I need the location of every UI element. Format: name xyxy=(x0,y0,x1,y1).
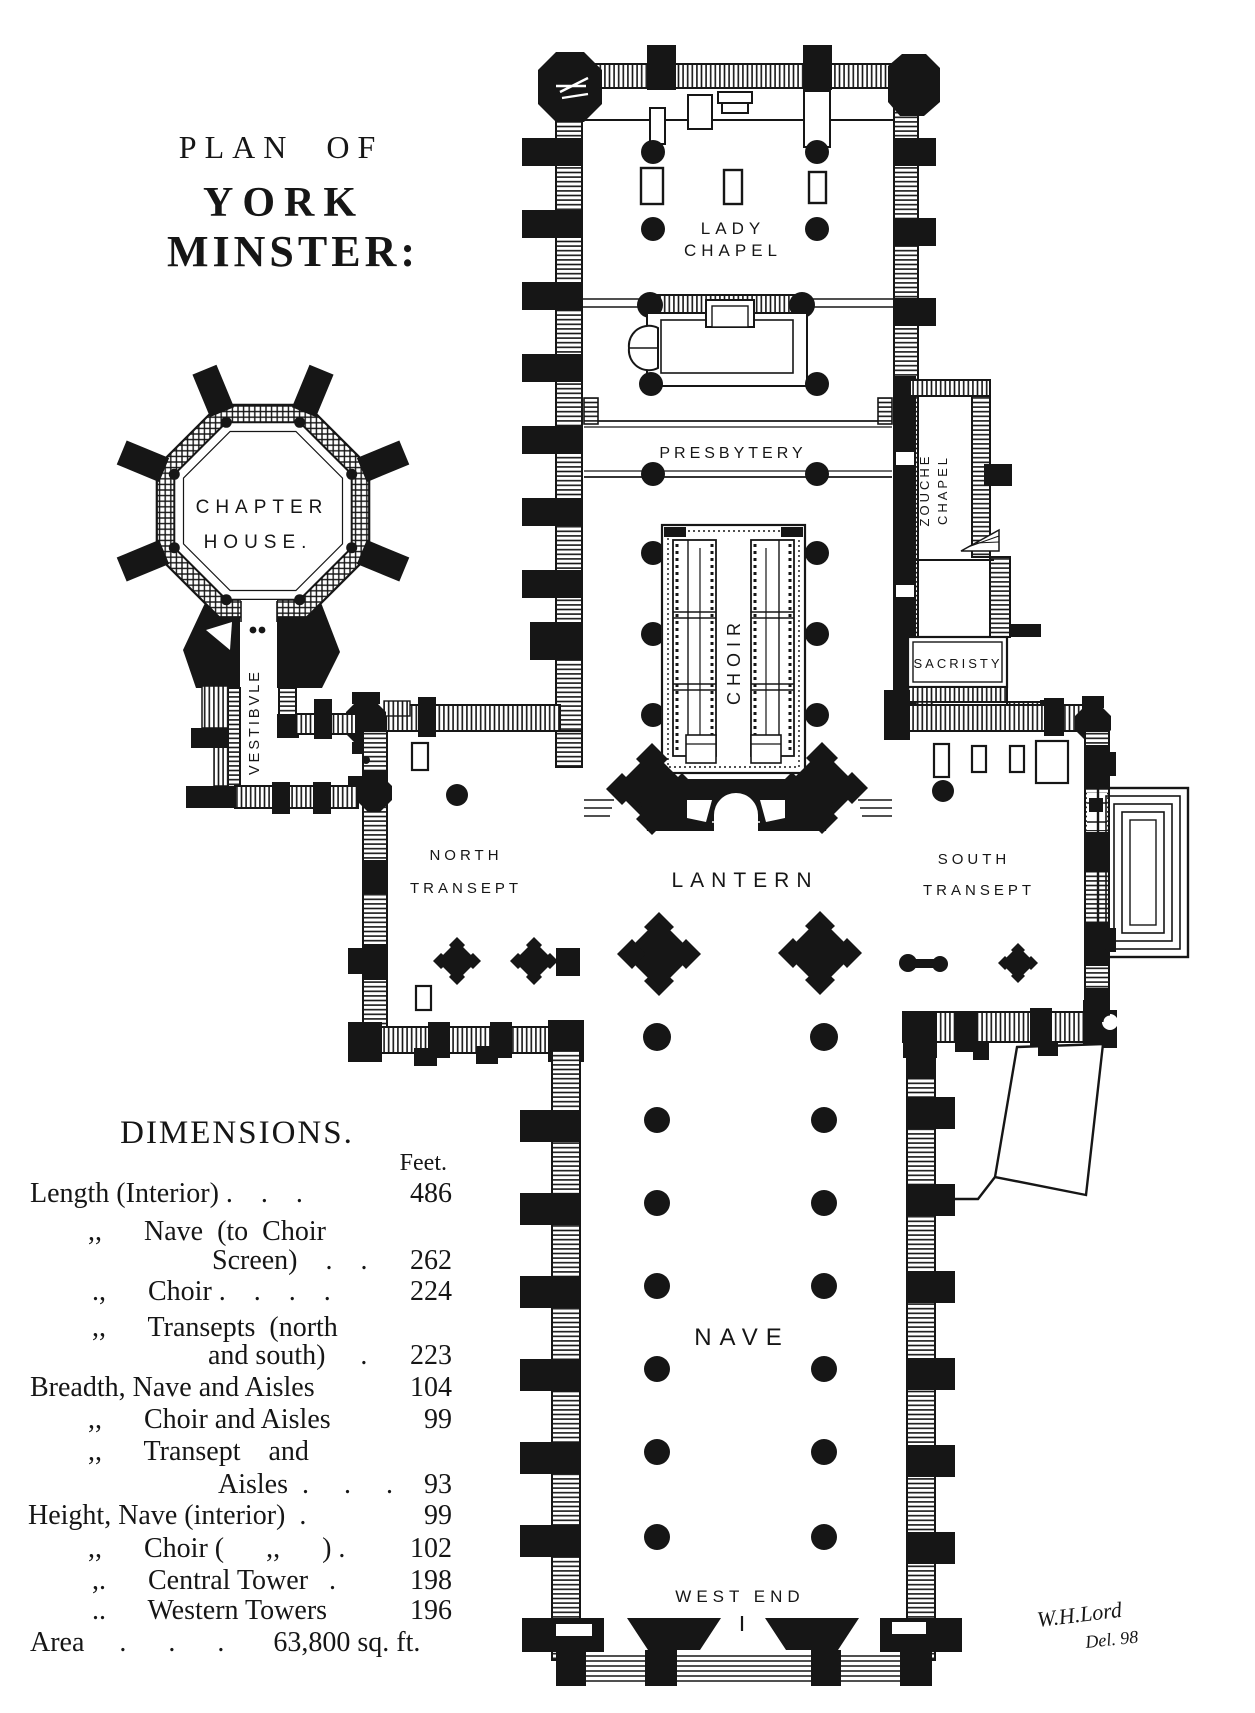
svg-text:LADY: LADY xyxy=(701,219,765,238)
svg-text:196: 196 xyxy=(410,1595,452,1626)
svg-text:MINSTER:: MINSTER: xyxy=(167,227,419,276)
svg-text:TRANSEPT: TRANSEPT xyxy=(923,882,1035,899)
svg-text:TRANSEPT: TRANSEPT xyxy=(410,880,522,897)
svg-text:.. Western Towers: .. Western Towers xyxy=(92,1595,327,1626)
svg-text:Area . . .: Area . . . 63,800 sq. ft. xyxy=(30,1627,420,1658)
svg-text:DIMENSIONS.: DIMENSIONS. xyxy=(120,1115,354,1151)
svg-text:CHOIR: CHOIR xyxy=(724,617,744,705)
svg-text:198: 198 xyxy=(410,1565,452,1596)
svg-text:93: 93 xyxy=(424,1469,452,1500)
svg-text:CHAPEL: CHAPEL xyxy=(684,241,782,260)
svg-text:224: 224 xyxy=(410,1276,452,1307)
svg-text:YORK: YORK xyxy=(203,180,365,226)
svg-text:Feet.: Feet. xyxy=(400,1150,447,1176)
svg-text:VESTIBVLE: VESTIBVLE xyxy=(247,669,263,775)
svg-text:., Choir . . . .: ., Choir . . . . xyxy=(92,1276,331,1307)
svg-text:NORTH: NORTH xyxy=(429,847,502,864)
svg-text:486: 486 xyxy=(410,1178,452,1209)
svg-text:NAVE: NAVE xyxy=(694,1324,790,1351)
svg-text:,, Transepts (north: ,, Transepts (north xyxy=(92,1312,338,1343)
svg-text:104: 104 xyxy=(410,1372,452,1403)
svg-text:ZOUCHE: ZOUCHE xyxy=(917,454,932,527)
svg-text:SACRISTY: SACRISTY xyxy=(913,656,1002,671)
svg-text:Height, Nave (interior) .: Height, Nave (interior) . xyxy=(28,1500,306,1531)
svg-text:WEST END: WEST END xyxy=(675,1587,804,1606)
svg-text:99: 99 xyxy=(424,1500,452,1531)
svg-text:and south) .: and south) . xyxy=(208,1340,367,1371)
svg-text:Aisles . . .: Aisles . . . xyxy=(218,1469,393,1500)
svg-text:CHAPEL: CHAPEL xyxy=(935,455,950,525)
svg-text:,, Choir and Aisles: ,, Choir and Aisles xyxy=(88,1404,331,1435)
svg-text:Screen) . .: Screen) . . xyxy=(212,1245,368,1276)
svg-text:PLAN OF: PLAN OF xyxy=(179,129,383,165)
svg-text:,, Nave (to Choir: ,, Nave (to Choir xyxy=(88,1216,327,1247)
svg-text:HOUSE.: HOUSE. xyxy=(204,532,313,553)
svg-text:223: 223 xyxy=(410,1340,452,1371)
svg-text:99: 99 xyxy=(424,1404,452,1435)
svg-text:262: 262 xyxy=(410,1245,452,1276)
svg-text:CHAPTER: CHAPTER xyxy=(196,497,329,518)
svg-text:,. Central Tower .: ,. Central Tower . xyxy=(92,1565,336,1596)
svg-text:Breadth, Nave and Aisles: Breadth, Nave and Aisles xyxy=(30,1372,315,1403)
svg-text:LANTERN: LANTERN xyxy=(671,869,818,892)
svg-text:Length (Interior) . . .: Length (Interior) . . . xyxy=(30,1178,303,1209)
svg-text:SOUTH: SOUTH xyxy=(938,851,1011,868)
svg-text:,, Choir ( ,, ): ,, Choir ( ,, ) . xyxy=(88,1533,345,1564)
svg-text:,, Transept and: ,, Transept and xyxy=(88,1436,309,1467)
svg-text:PRESBYTERY: PRESBYTERY xyxy=(659,445,806,462)
svg-text:102: 102 xyxy=(410,1533,452,1564)
